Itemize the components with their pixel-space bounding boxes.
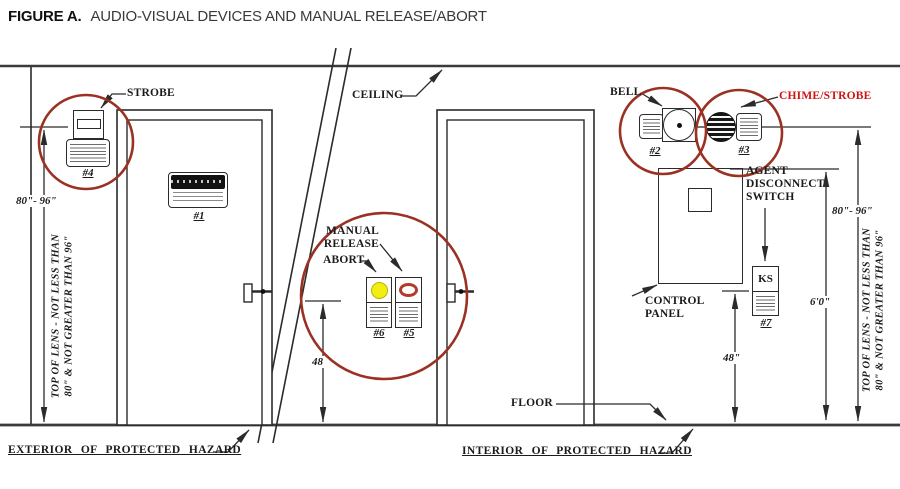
device-number-bell: #2	[642, 145, 668, 157]
strobe-leader	[101, 94, 126, 108]
chime-strobe-label: CHIME/STROBE	[779, 90, 872, 103]
abort-label: ABORT	[323, 254, 365, 267]
bell-label: BELL	[610, 86, 641, 99]
device-number-release: #5	[396, 327, 422, 339]
floor-label: FLOOR	[511, 397, 553, 410]
interior-of-protected-hazard-label: INTERIOR OF PROTECTED HAZARD	[462, 445, 692, 458]
device-number-abort: #6	[366, 327, 392, 339]
switch-height: 48"	[721, 352, 742, 364]
floor-leader	[556, 404, 666, 420]
device-number-sign: #1	[186, 210, 212, 222]
lens-note-line1: TOP OF LENS - NOT LESS THAN	[50, 234, 63, 398]
lens-note-line2: 80" & NOT GREATER THAN 96"	[63, 234, 76, 398]
lens-note-right: TOP OF LENS - NOT LESS THAN 80" & NOT GR…	[861, 228, 886, 392]
manual-release-leader	[380, 244, 402, 271]
bell-leader	[641, 93, 662, 106]
lens-range-right: 80"- 96"	[830, 205, 875, 217]
ceiling-leader	[401, 70, 442, 96]
strobe-label: STROBE	[127, 87, 175, 100]
lens-note-line2: 80" & NOT GREATER THAN 96"	[874, 228, 887, 392]
device-number-chime: #3	[731, 144, 757, 156]
annotation-layer	[0, 0, 900, 489]
lens-note-line1: TOP OF LENS - NOT LESS THAN	[861, 228, 874, 392]
highlight-circle-bell	[620, 88, 706, 174]
highlight-circle-chime	[696, 90, 782, 176]
device-number-keyswitch: #7	[753, 317, 779, 329]
agent-disconnect-switch-label: AGENT DISCONNECT SWITCH	[746, 165, 825, 204]
ceiling-label: CEILING	[352, 89, 403, 102]
lens-range-left: 80"- 96"	[14, 195, 59, 207]
panel-top-height: 6'0"	[808, 296, 832, 308]
device-number-strobe: #4	[74, 167, 102, 179]
control-panel-label: CONTROL PANEL	[645, 295, 705, 321]
release-height: 48	[310, 356, 325, 368]
figure-a-diagram: FIGURE A. AUDIO-VISUAL DEVICES AND MANUA…	[0, 0, 900, 489]
exterior-of-protected-hazard-label: EXTERIOR OF PROTECTED HAZARD	[8, 444, 241, 457]
lens-note-left: TOP OF LENS - NOT LESS THAN 80" & NOT GR…	[50, 234, 75, 398]
manual-release-label: MANUAL RELEASE	[322, 225, 379, 251]
